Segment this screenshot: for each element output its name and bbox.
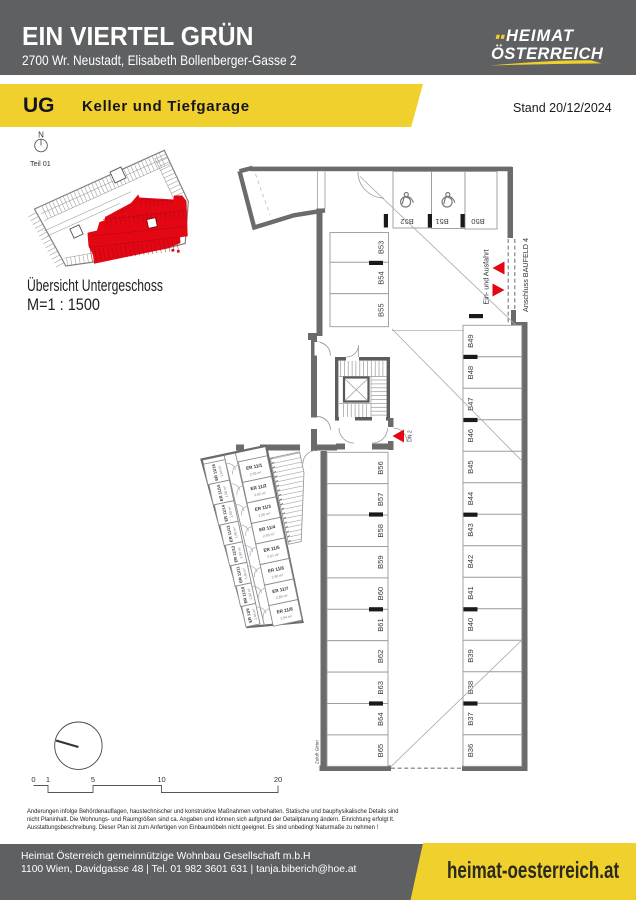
svg-text:B41: B41 xyxy=(466,586,475,600)
svg-text:0: 0 xyxy=(31,775,35,784)
svg-text:B50: B50 xyxy=(471,217,485,226)
svg-text:Zuluft Gitter: Zuluft Gitter xyxy=(315,740,320,764)
svg-text:Ein- und Ausfahrt: Ein- und Ausfahrt xyxy=(482,249,491,304)
svg-text:B51: B51 xyxy=(435,217,449,226)
svg-text:B42: B42 xyxy=(466,555,475,569)
svg-text:B65: B65 xyxy=(376,744,385,758)
svg-text:B61: B61 xyxy=(376,618,385,632)
svg-text:DN 2: DN 2 xyxy=(407,430,413,442)
svg-text:Anschluss BAUFELD 4: Anschluss BAUFELD 4 xyxy=(521,238,530,312)
svg-text:20: 20 xyxy=(274,775,282,784)
svg-text:B57: B57 xyxy=(376,493,385,507)
svg-text:B53: B53 xyxy=(377,241,386,255)
svg-text:5: 5 xyxy=(91,775,95,784)
svg-text:B49: B49 xyxy=(466,334,475,348)
svg-text:B62: B62 xyxy=(376,650,385,664)
svg-text:B45: B45 xyxy=(466,460,475,474)
svg-text:B63: B63 xyxy=(376,681,385,695)
svg-text:B36: B36 xyxy=(466,744,475,758)
svg-text:N: N xyxy=(38,131,44,140)
svg-text:B46: B46 xyxy=(466,429,475,443)
svg-text:10: 10 xyxy=(157,775,165,784)
svg-text:M=1 : 1500: M=1 : 1500 xyxy=(27,296,100,314)
svg-text:B58: B58 xyxy=(376,524,385,538)
svg-text:B56: B56 xyxy=(376,461,385,475)
svg-text:1: 1 xyxy=(46,775,50,784)
svg-text:B44: B44 xyxy=(466,492,475,506)
svg-text:B64: B64 xyxy=(376,712,385,726)
svg-text:B40: B40 xyxy=(466,618,475,632)
svg-text:Übersicht Untergeschoss: Übersicht Untergeschoss xyxy=(27,277,163,295)
svg-text:B43: B43 xyxy=(466,523,475,537)
svg-text:B39: B39 xyxy=(466,649,475,663)
svg-text:B48: B48 xyxy=(466,366,475,380)
svg-text:B37: B37 xyxy=(466,712,475,726)
svg-text:B54: B54 xyxy=(377,271,386,285)
svg-text:B60: B60 xyxy=(376,587,385,601)
svg-text:B59: B59 xyxy=(376,555,385,569)
svg-text:B55: B55 xyxy=(377,303,386,317)
svg-text:Teil 01: Teil 01 xyxy=(30,159,51,168)
